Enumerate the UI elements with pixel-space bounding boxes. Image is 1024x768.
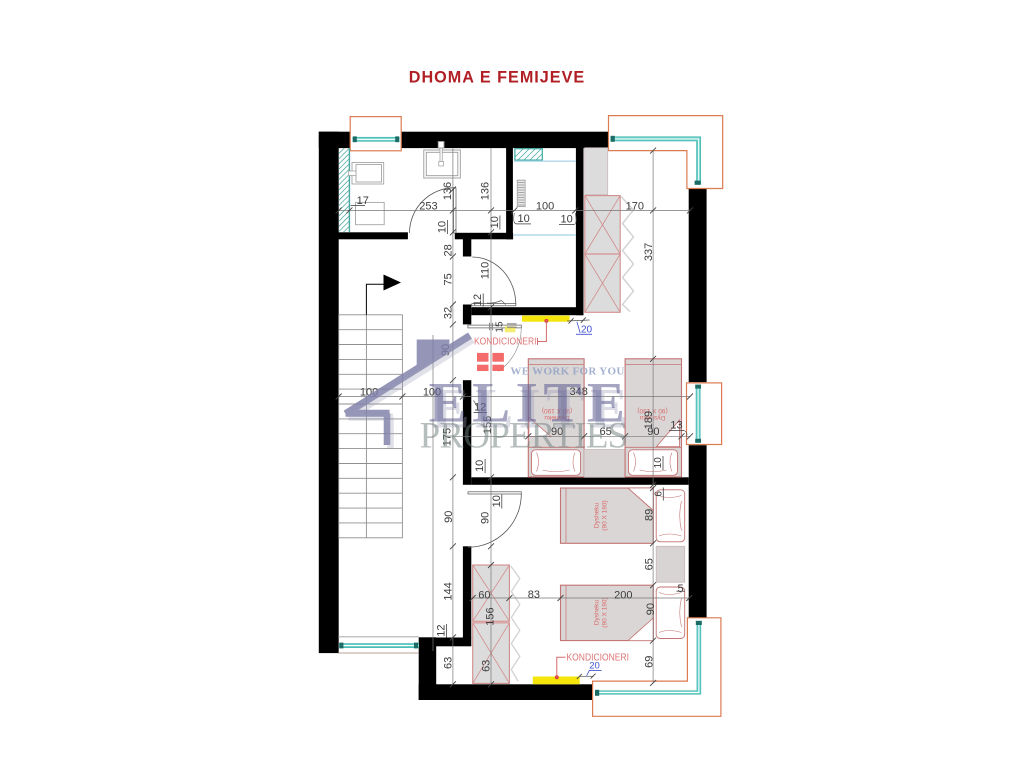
svg-text:10: 10: [491, 495, 503, 507]
svg-text:28: 28: [443, 244, 455, 256]
svg-text:10: 10: [489, 216, 501, 228]
svg-text:10: 10: [653, 457, 664, 469]
svg-text:(90 X 190): (90 X 190): [602, 597, 609, 627]
svg-text:Dysheku: Dysheku: [594, 599, 601, 625]
svg-text:13: 13: [670, 420, 682, 432]
svg-text:90: 90: [479, 512, 491, 524]
svg-text:10: 10: [517, 213, 529, 225]
svg-text:90: 90: [645, 603, 657, 615]
svg-text:63: 63: [442, 657, 454, 669]
svg-text:136: 136: [480, 182, 492, 200]
svg-text:100: 100: [536, 200, 554, 212]
svg-text:12: 12: [472, 294, 484, 306]
svg-text:156: 156: [484, 607, 496, 625]
svg-text:89: 89: [643, 509, 655, 521]
svg-text:(90 X 190): (90 X 190): [602, 500, 609, 530]
svg-text:12: 12: [436, 624, 448, 636]
svg-text:75: 75: [442, 273, 454, 285]
svg-text:170: 170: [626, 201, 644, 213]
svg-text:90: 90: [443, 511, 455, 523]
svg-text:110: 110: [479, 262, 491, 280]
svg-text:253: 253: [419, 201, 437, 213]
svg-text:10: 10: [437, 221, 449, 233]
svg-text:144: 144: [442, 582, 454, 600]
svg-text:65: 65: [643, 558, 655, 570]
svg-text:32: 32: [442, 307, 454, 319]
svg-text:PROPERTIES: PROPERTIES: [420, 416, 628, 457]
svg-text:69: 69: [643, 656, 655, 668]
svg-text:Dysheku: Dysheku: [594, 502, 601, 528]
svg-text:83: 83: [528, 589, 540, 601]
svg-text:15: 15: [495, 321, 506, 333]
svg-text:189: 189: [643, 411, 655, 429]
svg-text:200: 200: [614, 589, 632, 601]
svg-text:136: 136: [442, 182, 454, 200]
svg-text:6: 6: [653, 491, 664, 497]
svg-text:10: 10: [474, 460, 486, 472]
svg-text:63: 63: [480, 660, 492, 672]
svg-text:KONDICIONERI: KONDICIONERI: [474, 337, 537, 348]
svg-text:10: 10: [560, 214, 572, 226]
svg-text:337: 337: [643, 243, 655, 261]
svg-text:5: 5: [677, 583, 683, 595]
svg-text:60: 60: [478, 589, 490, 601]
svg-text:DHOMA E FEMIJEVE: DHOMA E FEMIJEVE: [409, 68, 585, 86]
